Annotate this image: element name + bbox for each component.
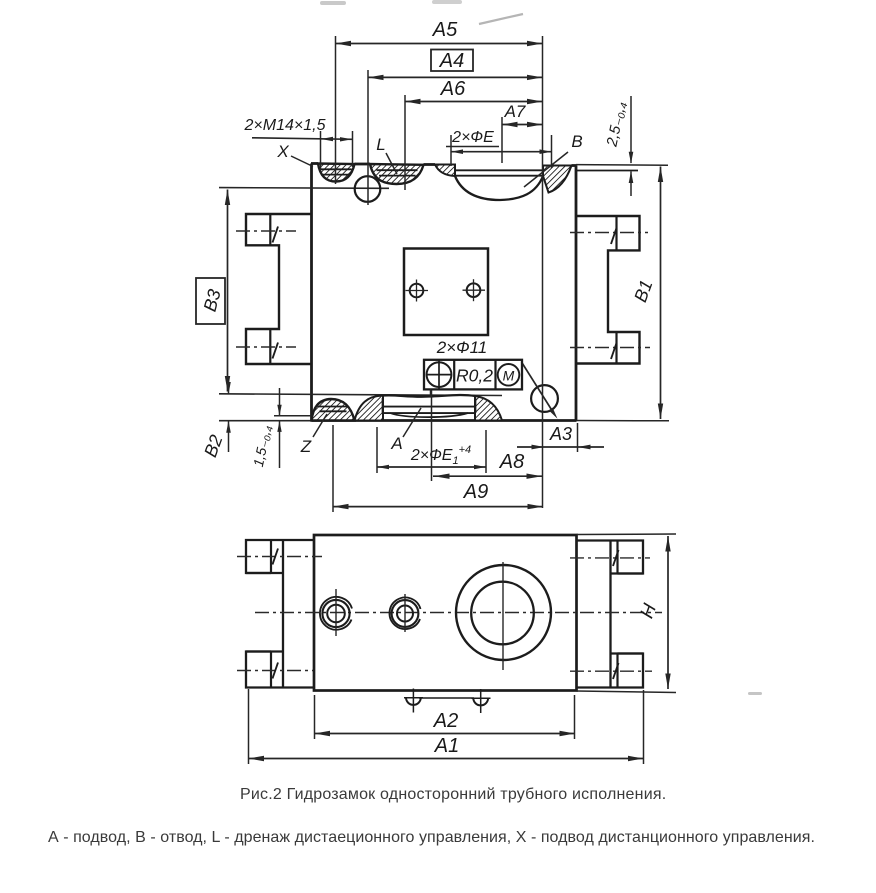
svg-text:L: L bbox=[376, 135, 385, 154]
svg-text:В3: В3 bbox=[200, 287, 225, 313]
svg-text:Н: Н bbox=[637, 601, 662, 621]
svg-text:2×М14×1,5: 2×М14×1,5 bbox=[244, 117, 326, 134]
svg-text:А8: А8 bbox=[499, 451, 524, 473]
svg-text:1,5₋₀,₄: 1,5₋₀,₄ bbox=[250, 423, 275, 468]
svg-text:В: В bbox=[571, 132, 582, 151]
svg-text:А5: А5 bbox=[432, 19, 458, 41]
svg-text:А: А bbox=[390, 434, 402, 453]
svg-text:М: М bbox=[503, 368, 515, 384]
svg-text:R0,2: R0,2 bbox=[456, 366, 493, 386]
svg-text:2×ФЕ1+4: 2×ФЕ1+4 bbox=[410, 444, 471, 467]
svg-text:А7: А7 bbox=[504, 102, 526, 121]
svg-text:Z: Z bbox=[300, 437, 312, 456]
svg-text:А6: А6 bbox=[440, 78, 466, 100]
svg-text:2×ФЕ: 2×ФЕ bbox=[451, 129, 494, 146]
svg-text:X: X bbox=[276, 142, 289, 161]
svg-text:А9: А9 bbox=[463, 481, 488, 503]
svg-text:А2: А2 bbox=[433, 710, 458, 732]
svg-text:В1: В1 bbox=[630, 277, 656, 305]
svg-text:2×Ф11: 2×Ф11 bbox=[436, 338, 488, 357]
svg-text:А1: А1 bbox=[434, 735, 459, 757]
svg-text:2,5₋₀,₄: 2,5₋₀,₄ bbox=[603, 100, 629, 149]
svg-text:В2: В2 bbox=[200, 432, 226, 460]
svg-text:А3: А3 bbox=[549, 424, 572, 444]
svg-text:А4: А4 bbox=[439, 50, 464, 72]
